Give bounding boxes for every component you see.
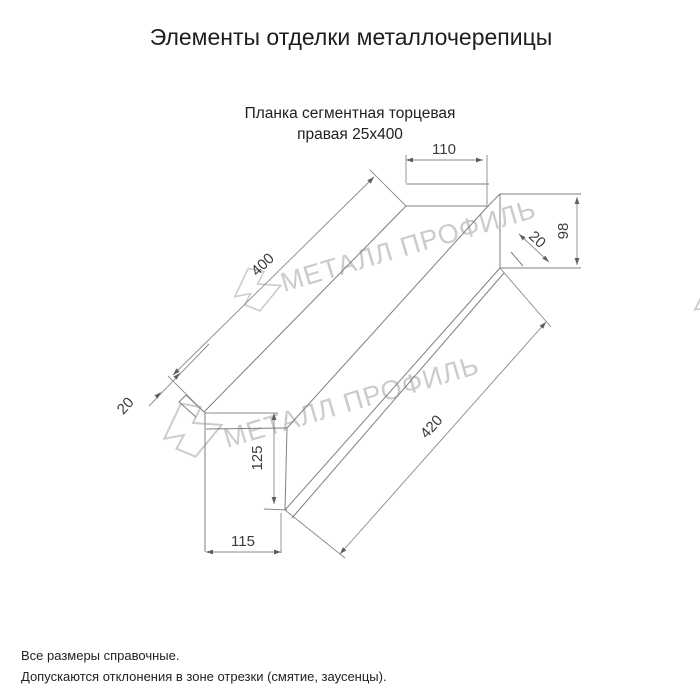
dim-label-400: 400 [248,250,278,280]
metal-profil-logo-icon [688,270,700,333]
technical-drawing-canvas: МЕТАЛЛ ПРОФИЛЬ МЕТАЛЛ ПРОФИЛЬ Элементы о… [0,0,700,700]
far-hem-fold [511,252,523,266]
watermark-1: МЕТАЛЛ ПРОФИЛЬ [228,194,539,317]
drawing-subtitle-line1: Планка сегментная торцевая [245,105,456,122]
dim-label-20-far: 20 [525,228,549,252]
dim-label-125: 125 [249,445,266,470]
footer-note-line1: Все размеры справочные. [21,648,179,663]
dim-label-20-near: 20 [114,394,138,418]
dim-label-420: 420 [417,412,446,442]
footer-note-line2: Допускаются отклонения в зоне отрезки (с… [21,669,387,684]
watermark-3-partial [688,270,700,333]
drawing-subtitle-line2: правая 25х400 [297,126,403,143]
page-title: Элементы отделки металлочерепицы [150,24,553,50]
dim-label-98: 98 [555,223,572,240]
dim-label-110: 110 [432,141,456,158]
footer-notes: Все размеры справочные. Допускаются откл… [21,648,387,684]
dim-label-115: 115 [231,533,255,550]
drawing-page: МЕТАЛЛ ПРОФИЛЬ МЕТАЛЛ ПРОФИЛЬ Элементы о… [0,0,700,700]
